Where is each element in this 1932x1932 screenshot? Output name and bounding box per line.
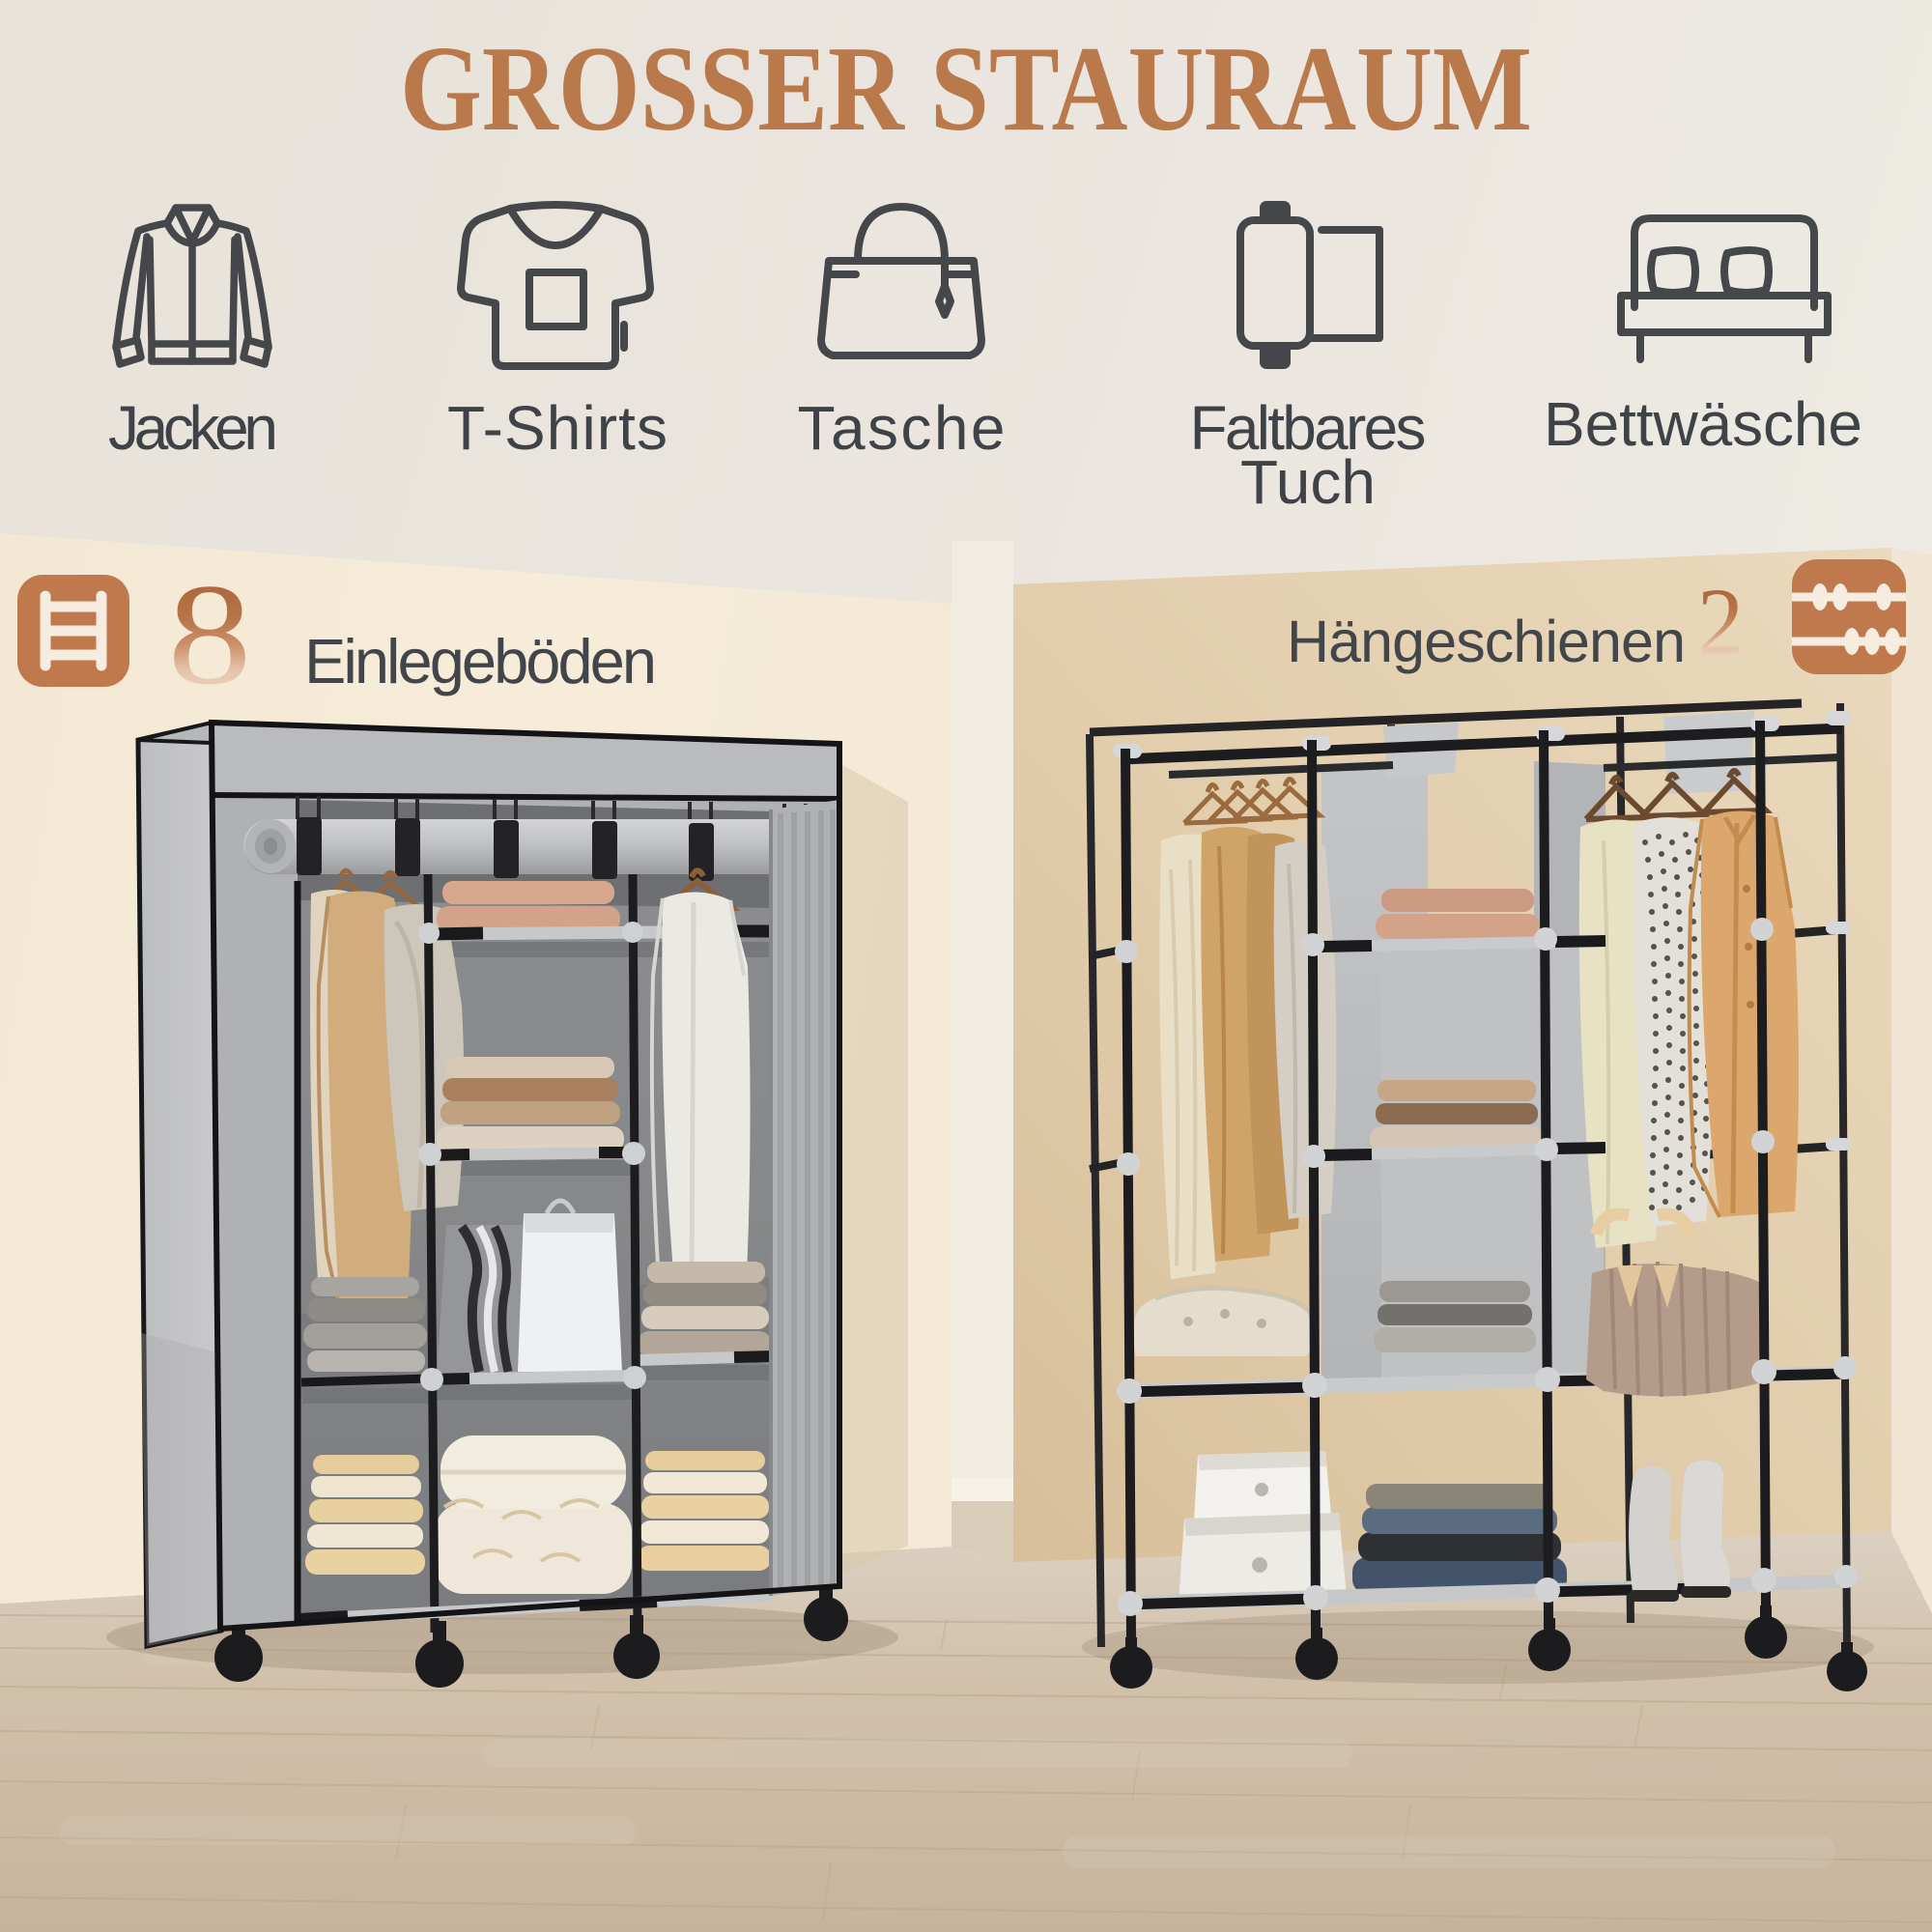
- svg-text:GROSSER STAURAUM: GROSSER STAURAUM: [400, 22, 1532, 156]
- svg-text:2: 2: [1697, 569, 1744, 676]
- svg-text:T-Shirts: T-Shirts: [447, 393, 668, 463]
- svg-text:Bettwäsche: Bettwäsche: [1544, 389, 1862, 459]
- svg-text:8: 8: [168, 554, 252, 715]
- svg-text:Jacken: Jacken: [108, 393, 278, 463]
- svg-text:Einlegeböden: Einlegeböden: [304, 626, 657, 696]
- svg-text:Tuch: Tuch: [1240, 447, 1376, 517]
- svg-text:Hängeschienen: Hängeschienen: [1287, 609, 1686, 674]
